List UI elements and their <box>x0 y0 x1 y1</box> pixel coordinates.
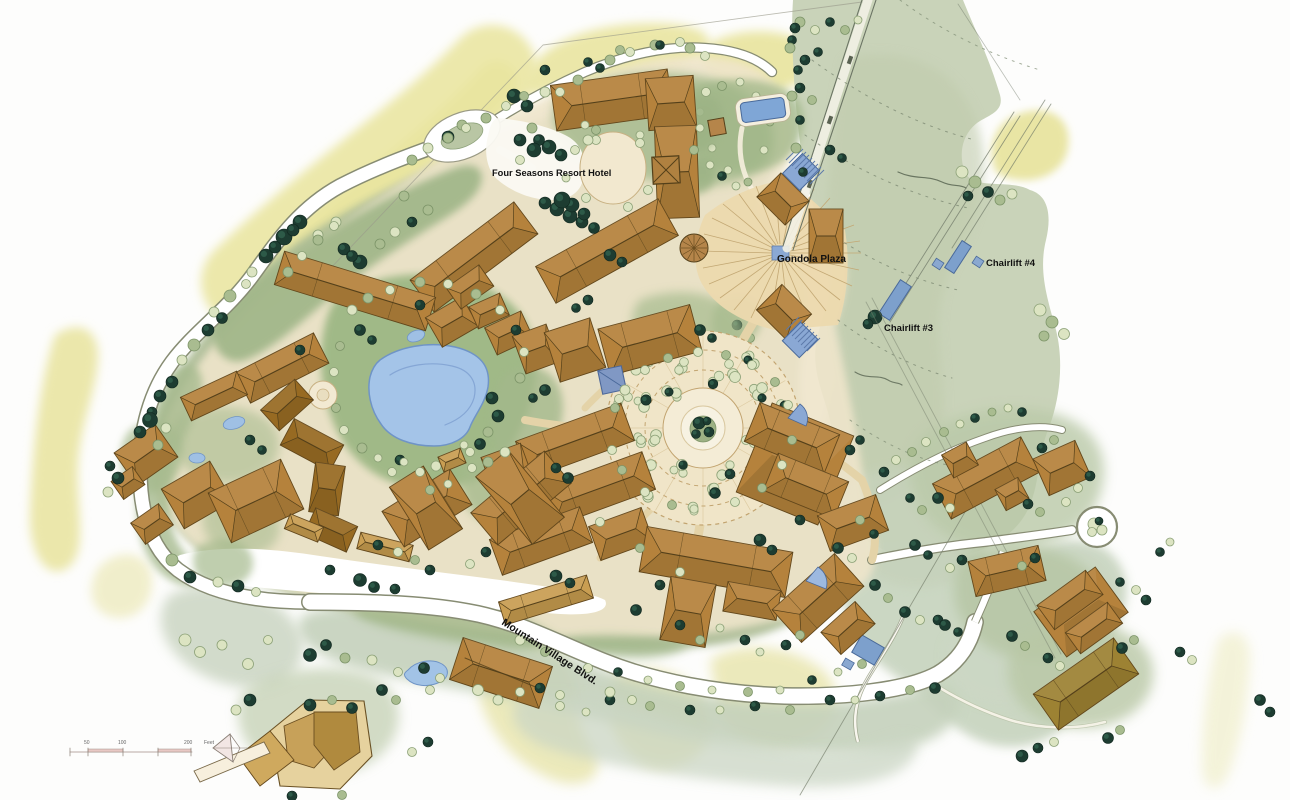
svg-text:Gondola Plaza: Gondola Plaza <box>777 254 846 265</box>
svg-text:Feet: Feet <box>204 740 215 746</box>
svg-text:Chairlift #4: Chairlift #4 <box>986 258 1036 269</box>
svg-text:100: 100 <box>118 740 127 746</box>
svg-text:Four Seasons Resort Hotel: Four Seasons Resort Hotel <box>492 168 611 178</box>
svg-text:Chairlift #3: Chairlift #3 <box>884 323 933 334</box>
svg-text:200: 200 <box>184 740 193 746</box>
svg-text:50: 50 <box>84 740 90 746</box>
